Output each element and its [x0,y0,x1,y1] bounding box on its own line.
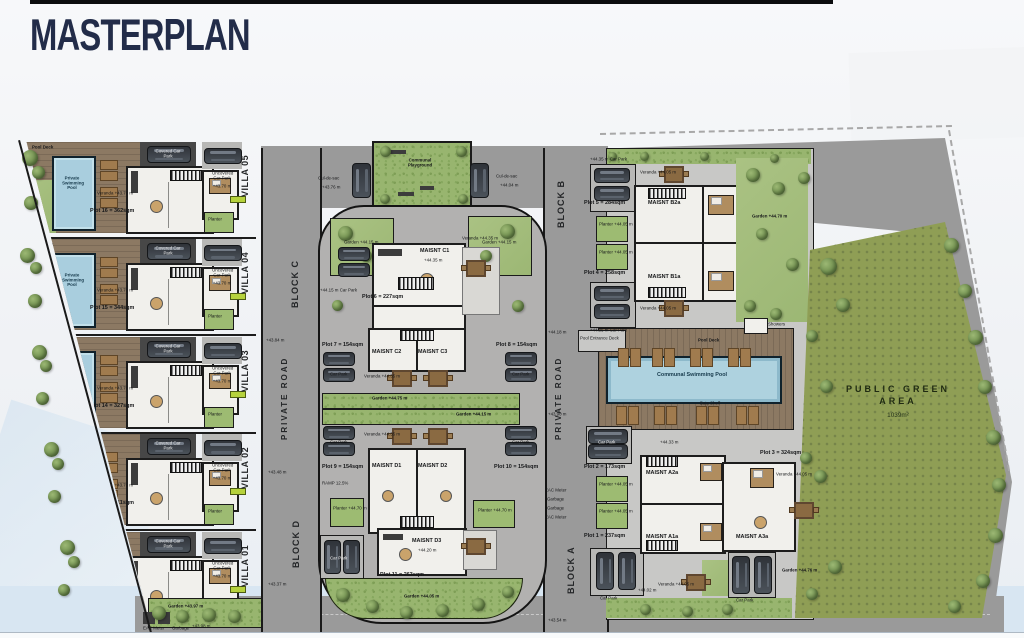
tree-icon [756,228,768,240]
c2-carpark-label: Car Park [330,372,347,377]
dining-table [440,490,452,502]
tree-icon [366,600,379,613]
pool-deck-label: Pool Deck [32,242,53,247]
c3-carpark-label: Car Park [512,372,529,377]
car-icon [754,556,772,594]
showers-label: Showers [768,322,785,327]
tree-icon [44,442,59,457]
planter-label: Planter [208,217,222,222]
utility-label: Garbage [547,506,564,511]
uncovered-car-park-label: Uncovered Car Park [212,366,232,376]
uncovered-car-park [202,434,242,461]
plot2-label: Plot 2 = 173sqm [584,464,625,470]
blockb-veranda-bottom-label: Veranda +44.05 m [640,306,676,311]
planter [204,504,234,525]
stairs-icon [170,560,202,571]
dining-table [399,548,412,561]
maisonette-a1a-label: MAISNT A1a [646,534,678,540]
villa-veranda-label: Veranda +43.70 m [97,386,133,391]
stairs-icon [398,277,434,290]
tree-icon [798,172,810,184]
stairs-icon [646,456,678,467]
villa-private-pool [52,351,96,426]
central-bottom-garden-label: Garden +44.05 m [404,594,439,599]
bed-icon [700,523,722,541]
tree-icon [456,146,467,157]
tree-icon [502,586,514,598]
utility-label: EAC Meter [545,515,567,520]
stairs-icon [648,188,686,199]
lounger-icon [616,406,627,425]
villa-plot-label: Plot 15 = 344sqm [90,305,134,311]
party-wall [636,242,738,244]
communal-pool-label: Communal Swimming Pool [651,372,733,378]
garden-strip-2-label: Garden +44.15 m [456,412,491,417]
pool-deck-label: Pool Deck [32,145,53,150]
elevation-mark: +43.48 m [268,470,286,475]
villa-pool-label: Private Swimming Pool [62,176,82,191]
tree-icon [228,610,241,623]
block-b-label: BLOCK B [556,172,566,236]
tree-icon [380,146,391,157]
dining-table [754,516,767,529]
car-icon [323,352,355,366]
public-green-area-value: 1039m² [866,412,930,419]
garden-strip-1-label: Garden +44.75 m [372,396,407,401]
car-icon [505,426,537,440]
blocka-veranda-label: Veranda +44.05 m [658,582,694,587]
c2-plot-label: Plot 7 = 154sqm [322,342,363,348]
uncovered-car-park-level: +43.70 m [212,476,232,481]
blocka-garden-right-label: Garden +44.76 m [782,568,817,573]
villa-garden [18,570,56,623]
tree-icon [968,330,983,345]
maisonette-d2-label: MAISNT D2 [418,463,447,469]
tree-icon [48,490,61,503]
private-road-left-label: PRIVATE ROAD [280,350,289,446]
tree-icon [772,182,785,195]
inner-wall [168,474,169,520]
veranda-top-label: Veranda +44.35 m [364,374,400,379]
villa-plot-label: Plot 13 = 311sqm [90,500,134,506]
tree-icon [770,154,779,163]
plot3-label: Plot 3 = 324sqm [760,450,801,456]
tree-icon [68,556,80,568]
planter-label: Planter +44.05 m [599,482,633,487]
d2-carpark-label: Car Park [512,440,529,445]
uncovered-car-park-level: +43.70 m [212,184,232,189]
lounger-icon [652,348,663,367]
car-icon [505,352,537,366]
planter [596,216,628,242]
planter [204,407,234,428]
villa-pool-label: Private Swimming Pool [62,468,82,483]
uncovered-car-park-level: +43.70 m [212,574,232,579]
tree-icon [806,330,818,342]
private-road-right-label: PRIVATE ROAD [554,350,563,446]
utility-label: Garbage [547,497,564,502]
utility-label: EAC Meter [143,626,165,631]
planter [204,212,234,233]
bed-icon [708,195,734,215]
bed-icon [700,463,722,481]
tree-icon [176,610,189,623]
lounger-icon [100,268,118,278]
tree-icon [640,604,651,615]
stairs-icon [170,267,202,278]
veranda-bottom-label: Veranda +44.35 m [364,432,400,437]
covered-car-park-label: Covered Car Park [154,441,183,451]
lounger-icon [666,406,677,425]
outdoor-table-icon [428,370,448,387]
c1-carpark-label: +44.15 m Car Park [320,288,357,293]
tree-icon [40,360,52,372]
inner-wall [168,377,169,423]
villa-name-label: VILLA 02 [240,440,250,496]
outdoor-table-icon [794,502,814,519]
maisonette-a2a-label: MAISNT A2a [646,470,678,476]
uncovered-car-park-label: Uncovered Car Park [212,268,232,278]
dining-table [150,200,163,213]
tree-icon [640,152,649,161]
tree-icon [944,238,959,253]
block-a-label: BLOCK A [566,538,576,602]
car-icon [204,148,242,164]
uncovered-car-park-level: +43.70 m [212,379,232,384]
tree-icon [828,560,842,574]
inner-wall [168,279,169,325]
planter [596,503,628,529]
maisonette-b1a-label: MAISNT B1a [648,274,680,280]
lounger-icon [100,257,118,267]
lounger-icon [630,348,641,367]
c1-plot-label: Plot 6 = 227sqm [362,294,403,300]
lounger-icon [654,406,665,425]
tree-icon [30,262,42,274]
lounger-icon [100,160,118,170]
lounger-icon [100,366,118,376]
villa-house [126,166,214,234]
tree-icon [458,194,468,204]
tree-icon [746,168,760,182]
tree-icon [958,284,972,298]
uncovered-car-park-label: Uncovered Car Park [212,561,232,571]
lounger-icon [664,348,675,367]
d1-plot-label: Plot 9 = 154sqm [322,464,363,470]
c1-garden-left-label: Garden +44.15 m [344,240,378,245]
tree-icon [988,528,1003,543]
block-d-label: BLOCK D [291,512,301,576]
pool-deck-label: Pool Deck [32,340,53,345]
tree-icon [202,608,216,622]
lounger-icon [100,588,118,598]
d3-plot-label: Plot 11 = 263sqm [380,572,424,578]
covered-car-park-label: Covered Car Park [154,539,183,549]
tree-icon [20,248,35,263]
villa-plot-label: Plot 14 = 327sqm [90,403,134,409]
villa-pool-label: Private Swimming Pool [62,371,82,386]
tree-icon [948,600,961,613]
elevation-mark: +43.90 m [548,412,566,417]
dining-table [150,395,163,408]
tree-icon [682,606,693,617]
maisonette-d1-label: MAISNT D1 [372,463,401,469]
tree-icon [986,430,1001,445]
villa-house [126,263,214,331]
tree-icon [400,606,413,619]
villa-name-label: VILLA 03 [240,343,250,399]
car-icon [323,426,355,440]
planter [473,500,515,528]
tree-icon [332,300,343,311]
lounger-icon [100,577,118,587]
tree-icon [28,294,42,308]
seesaw-icon [398,192,414,196]
elevation-mark: +43.98 m [192,624,210,629]
villa-garden-label: Garden [24,594,39,599]
villa-pool-label: Private Swimming Pool [62,273,82,288]
baja-shelf-label: Baja Shelf [700,401,720,406]
d1-carpark-label: Car Park [330,440,347,445]
tree-icon [700,152,709,161]
planter-label: Planter +44.70 m [333,506,367,511]
boundary-dashed-top [600,125,952,135]
plot5-label: Plot 5 = 284sqm [584,200,625,206]
maisonette-d3-label: MAISNT D3 [412,538,441,544]
car-icon [204,245,242,261]
blocka-bottom-green [606,598,792,618]
tree-icon [744,300,756,312]
tree-icon [152,606,166,620]
planter-label: Planter +44.70 m [478,508,512,513]
tree-icon [806,588,818,600]
elevation-mark: +44.02 m [638,588,656,593]
culdesac-left-level: +43.76 m [322,185,340,190]
c3-plot-label: Plot 8 = 154sqm [496,342,537,348]
public-green-title-2: AREA [838,397,958,407]
kitchen-counter [378,249,402,256]
blocka-carpark3-label: Car Park [736,598,753,603]
tree-icon [800,452,812,464]
lounger-icon [618,348,629,367]
maisonette-c2-label: MAISNT C2 [372,349,401,355]
plot1-label: Plot 1 = 237sqm [584,533,625,539]
car-icon [618,552,636,590]
villa-row: Garden Private Swimming Pool Pool Deck V… [18,237,256,336]
maisonette-c1-label: MAISNT C1 [420,248,449,254]
lounger-icon [100,171,118,181]
uncovered-car-park-label: Uncovered Car Park [212,463,232,473]
blockb-carpark-bottom-label: +44.35 m Car Park [590,328,627,333]
pool-deck-label: Pool Deck [698,338,719,343]
tree-icon [60,540,75,555]
elevation-mark: +44.18 m [548,330,566,335]
dining-table [382,490,394,502]
dining-table [150,492,163,505]
tree-icon [472,598,485,611]
car-icon [732,556,750,594]
stairs-icon [400,516,434,528]
pool-deck-label: Pool Deck [32,535,53,540]
tree-icon [722,604,733,615]
lounger-icon [708,406,719,425]
car-icon [204,440,242,456]
lounger-icon [100,393,118,403]
playground-label: Communal Playground [405,158,436,168]
bench-icon [420,186,434,190]
tree-icon [58,584,70,596]
villa-name-label: VILLA 04 [240,245,250,301]
outdoor-table-icon [466,538,486,555]
planter-label: Planter [208,509,222,514]
villa-veranda-label: Veranda +43.70 m [97,191,133,196]
tree-icon [976,574,990,588]
car-icon [594,168,630,183]
car-icon [204,538,242,554]
maisonette-d3-level: +44.20 m [418,548,436,553]
planter-label: Planter [208,412,222,417]
villa-house [126,361,214,429]
lounger-icon [100,355,118,365]
tree-icon [52,458,64,470]
utility-label: Garbage [172,626,189,631]
public-green-title-1: PUBLIC GREEN [838,385,958,395]
maisonette-c3-label: MAISNT C3 [418,349,447,355]
uncovered-car-park [202,532,242,559]
villa-name-label: VILLA 05 [240,148,250,204]
car-icon [338,263,370,277]
villa-name-label: VILLA 01 [240,538,250,594]
villa-veranda-label: Veranda +43.70 m [97,288,133,293]
stairs-icon [170,170,202,181]
villa-row: Garden Private Swimming Pool Pool Deck V… [18,335,256,434]
culdesac-left-label: Cul-de-sac [318,176,339,181]
lounger-icon [100,550,118,560]
car-icon [352,163,371,198]
car-icon [470,163,489,198]
planter [330,498,364,527]
blockb-veranda-top-label: Veranda +44.05 m [640,170,676,175]
villa-plot-label: Plot 16 = 362sqm [90,208,134,214]
planter-label: Planter +44.05 m [599,222,633,227]
blockb-garden-label: Garden +44.70 m [752,214,787,219]
tree-icon [992,478,1006,492]
c1-veranda-label: Veranda +44.35 m [462,236,498,241]
tree-icon [836,298,850,312]
lounger-icon [100,561,118,571]
planter-label: Planter +44.05 m [599,250,633,255]
car-icon [588,444,628,459]
planter [596,244,628,270]
car-icon [338,247,370,261]
site-plan: Garden Private Swimming Pool Pool Deck V… [0,0,1024,638]
villa-garden-label: Garden [24,496,39,501]
elevation-mark: +43.37 m [268,582,286,587]
villa-house [126,458,214,526]
showers-room [744,318,768,334]
covered-car-park-label: Covered Car Park [154,149,183,159]
bottom-strip [0,632,1024,638]
lounger-icon [740,348,751,367]
villas-bottom-garden-label: Garden +43.97 m [168,604,203,609]
villa-veranda-label: Veranda +43.70 m [97,483,133,488]
tree-icon [380,194,390,204]
villa-veranda-label: Veranda +43.70 m [97,581,133,586]
tree-icon [978,380,992,394]
culdesac-right-level: +44.04 m [500,183,518,188]
lounger-icon [628,406,639,425]
blockb-garden [736,158,808,322]
maisonette-a3a-label: MAISNT A3a [736,534,768,540]
tree-icon [770,308,782,320]
lounger-icon [696,406,707,425]
tree-icon [436,604,449,617]
stairs-icon [170,365,202,376]
dining-table [150,297,163,310]
outdoor-table-icon [428,428,448,445]
tree-icon [500,224,515,239]
lounger-icon [736,406,747,425]
uncovered-car-park [202,142,242,169]
uncovered-car-park [202,337,242,364]
car-icon [594,304,630,319]
elevation-mark: +43.84 m [266,338,284,343]
car-icon [204,343,242,359]
inner-wall [702,187,704,300]
lounger-icon [728,348,739,367]
planter-label: Planter +44.05 m [599,509,633,514]
tree-icon [820,380,833,393]
tree-icon [820,258,837,275]
covered-car-park-label: Covered Car Park [154,344,183,354]
bed-icon [750,468,774,488]
party-wall [642,503,724,505]
inner-wall [168,182,169,228]
public-green-area [790,215,1014,624]
blockb-carpark-top-label: +44.35 m Car Park [590,157,627,162]
covered-car-park-label: Covered Car Park [154,246,183,256]
car-icon [594,286,630,301]
villas-block: Garden Private Swimming Pool Pool Deck V… [18,140,256,628]
planter-label: Planter [208,314,222,319]
d2-plot-label: Plot 10 = 154sqm [494,464,538,470]
blocka-carpark1-label: Car Park [598,440,615,445]
lounger-icon [690,348,701,367]
tree-icon [32,345,47,360]
tree-icon [336,588,350,602]
utility-label: EAC Meter [545,488,567,493]
elevation-mark: +44.33 m [660,440,678,445]
lounger-icon [748,406,759,425]
planter [596,476,628,502]
blocka-veranda-right-label: Veranda +44.05 m [776,472,812,477]
plot4-label: Plot 4 = 258sqm [584,270,625,276]
lounger-icon [702,348,713,367]
elevation-mark: +43.54 m [548,618,566,623]
d3-carpark-label: Car Park [330,556,347,561]
tree-icon [32,166,45,179]
villa-plot-label: Plot 12 = 339sqm [90,598,134,604]
villa-private-pool [52,156,96,231]
tree-icon [512,300,524,312]
car-icon [596,552,614,590]
uncovered-car-park-level: +43.70 m [212,281,232,286]
garden-strip-1 [322,393,520,409]
stairs-icon [400,330,434,341]
stairs-icon [646,540,678,551]
block-c-label: BLOCK C [290,252,300,316]
uncovered-car-park-label: Uncovered Car Park [212,171,232,181]
